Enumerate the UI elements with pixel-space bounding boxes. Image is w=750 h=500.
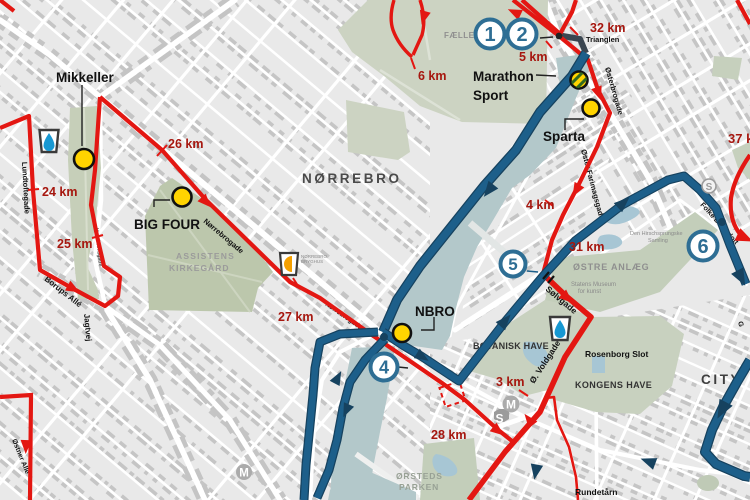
svg-text:BRYGHUS: BRYGHUS: [301, 259, 323, 264]
svg-text:1: 1: [484, 24, 495, 46]
svg-text:4: 4: [379, 357, 389, 377]
svg-text:6: 6: [697, 236, 708, 258]
svg-text:for kunst: for kunst: [578, 289, 601, 295]
svg-text:Rosenborg Slot: Rosenborg Slot: [585, 349, 648, 359]
svg-text:Rundetårn: Rundetårn: [575, 487, 618, 497]
svg-text:4 km: 4 km: [526, 198, 555, 212]
svg-text:ØRSTEDS: ØRSTEDS: [396, 471, 443, 481]
svg-text:NBRO: NBRO: [415, 304, 455, 319]
svg-text:PARKEN: PARKEN: [399, 482, 439, 492]
svg-text:ASSISTENS: ASSISTENS: [176, 251, 235, 261]
svg-text:25 km: 25 km: [57, 237, 92, 251]
svg-text:Statens Museum: Statens Museum: [571, 282, 616, 288]
svg-text:37 k: 37 k: [728, 131, 750, 146]
svg-text:KONGENS HAVE: KONGENS HAVE: [575, 380, 652, 390]
svg-text:24 km: 24 km: [42, 185, 77, 199]
svg-text:32 km: 32 km: [590, 21, 625, 35]
svg-text:6 km: 6 km: [418, 69, 447, 83]
svg-text:KIRKEGÅRD: KIRKEGÅRD: [169, 263, 229, 273]
svg-text:Sport: Sport: [473, 88, 509, 103]
svg-text:Sparta: Sparta: [543, 129, 586, 144]
svg-text:S: S: [706, 182, 713, 193]
svg-text:NØRREBRO: NØRREBRO: [302, 171, 402, 186]
svg-text:26 km: 26 km: [168, 137, 203, 151]
svg-text:27 km: 27 km: [278, 310, 313, 324]
svg-text:31 km: 31 km: [569, 240, 604, 254]
svg-text:M: M: [239, 468, 249, 480]
svg-text:3 km: 3 km: [496, 375, 525, 389]
svg-text:Trianglen: Trianglen: [586, 35, 620, 44]
svg-text:BIG FOUR: BIG FOUR: [134, 217, 200, 232]
svg-text:5: 5: [508, 255, 517, 274]
svg-text:2: 2: [516, 24, 527, 46]
svg-text:Marathon: Marathon: [473, 69, 534, 84]
svg-text:S: S: [495, 412, 503, 426]
svg-text:Mikkeller: Mikkeller: [56, 70, 115, 85]
svg-text:28 km: 28 km: [431, 428, 466, 442]
svg-text:5 km: 5 km: [519, 50, 548, 64]
svg-text:Samling: Samling: [648, 238, 668, 244]
svg-text:ØSTRE ANLÆG: ØSTRE ANLÆG: [573, 262, 649, 272]
svg-text:Den Hirschsprungske: Den Hirschsprungske: [630, 231, 683, 237]
svg-text:M: M: [506, 398, 516, 412]
